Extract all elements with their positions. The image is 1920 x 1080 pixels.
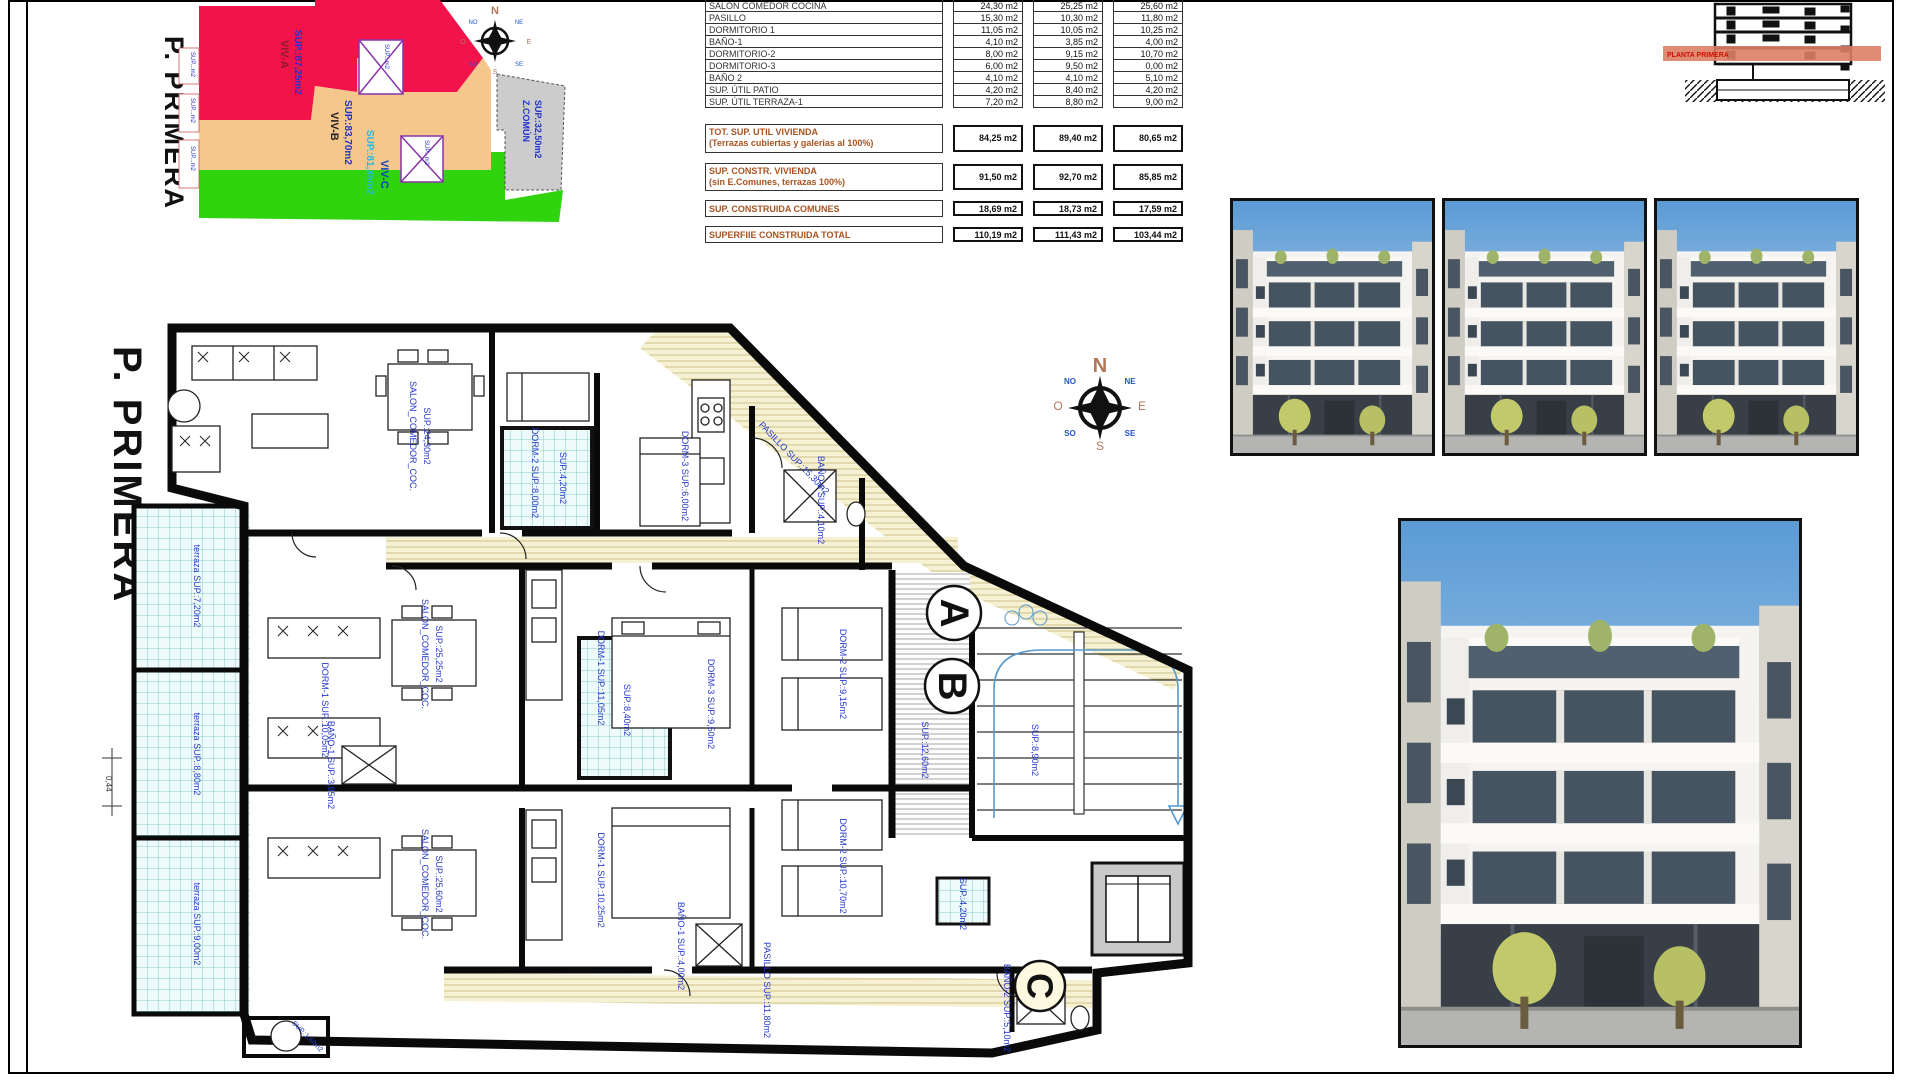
summary-viv-a: 84,25 m2	[953, 125, 1023, 152]
svg-text:NE: NE	[515, 20, 523, 26]
area-table: SALON COMEDOR COCINA 24,30 m2 25,25 m2 2…	[705, 0, 1165, 243]
room-label: SUP.:4,20m2	[558, 452, 568, 504]
summary-viv-b: 92,70 m2	[1033, 164, 1103, 191]
room-label: SALON_COMEDOR_COC.	[408, 381, 418, 491]
room-label: SUP.:8,40m2	[622, 684, 632, 736]
zone-viv-b-sup: SUP.:83,70m2	[342, 100, 353, 165]
summary-title: SUP. CONSTRUIDA COMUNES	[709, 204, 840, 214]
patio-1	[502, 428, 592, 528]
svg-text:SO: SO	[469, 62, 478, 68]
site-patio-square	[401, 136, 443, 182]
summary-note: (Terrazas cubiertas y galerias al 100%)	[709, 138, 939, 149]
room-label: DORM-3 SUP.:6,00m2	[680, 431, 690, 521]
room-label: DORM-1 SUP.:10,05m2	[320, 662, 330, 757]
summary-title: SUP. CONSTR. VIVIENDA	[709, 166, 817, 176]
photo-building-render-3	[1654, 198, 1859, 456]
site-patio-label: SUP...m2	[423, 140, 429, 166]
room-label: DORM-1 SUP.:10,25m2	[596, 832, 606, 927]
room-label: BAÑO-1 SUP.:4,00m2	[676, 902, 686, 990]
svg-text:NO: NO	[469, 20, 478, 26]
summary-row-total: SUPERFIIE CONSTRUIDA TOTAL 110,19 m2 111…	[705, 226, 1165, 243]
room-label: DORM-2 SUP.:9,15m2	[838, 629, 848, 719]
room-label: SUP.:25,60m2	[434, 855, 444, 912]
big-building-render	[1398, 518, 1802, 1048]
room-label: terraza SUP.:7,20m2	[192, 545, 202, 628]
site-edge-boxes	[179, 48, 199, 188]
room-label: terraza SUP.:9,00m2	[192, 883, 202, 966]
site-patio-square	[359, 40, 403, 94]
compass-rose-small: N E O S NO NE SO SE	[460, 5, 531, 76]
site-edge-label: SUP...m2	[189, 52, 195, 78]
sheet-border-inner-line	[26, 0, 28, 1074]
planta-band-label: PLANTA PRIMERA	[1667, 52, 1729, 59]
summary-viv-c: 103,44 m2	[1113, 227, 1183, 242]
table-row: SUP. ÚTIL TERRAZA-1 7,20 m2 8,80 m2 9,00…	[705, 95, 1165, 108]
room-label: SALON_COMEDOR_COC.	[420, 829, 430, 939]
summary-viv-c: 85,85 m2	[1113, 164, 1183, 191]
zone-comun-name: Z.COMÚN	[521, 100, 532, 142]
zone-viv-c-name: VIV-C	[378, 160, 390, 189]
summary-viv-c: 80,65 m2	[1113, 125, 1183, 152]
zone-comun-sup: SUP.:32,50m2	[533, 100, 543, 158]
room-label: BAÑO-2 SUP.:5,10m2	[1002, 964, 1012, 1052]
summary-viv-a: 110,19 m2	[953, 227, 1023, 242]
unit-letter-b: B	[930, 672, 974, 701]
room-label: BAÑO-2 SUP.:4,10m2	[816, 456, 826, 544]
summary-viv-b: 111,43 m2	[1033, 227, 1103, 242]
room-label: SUP.:8,90m2	[1030, 724, 1040, 776]
summary-row-comunes: SUP. CONSTRUIDA COMUNES 18,69 m2 18,73 m…	[705, 200, 1165, 217]
pasillo-band-mid	[386, 537, 958, 563]
summary-row-util: TOT. SUP. UTIL VIVIENDA (Terrazas cubier…	[705, 124, 1165, 153]
summary-viv-b: 89,40 m2	[1033, 125, 1103, 152]
terrace-1	[134, 508, 250, 668]
room-label: PASILLO SUP.:11,80m2	[762, 942, 772, 1038]
summary-label: SUP. CONSTR. VIVIENDA (sin E.Comunes, te…	[705, 163, 943, 192]
room-label: SUP.:12,60m2	[920, 721, 930, 778]
dimension-label: 0,44	[104, 776, 113, 792]
summary-viv-a: 18,69 m2	[953, 201, 1023, 216]
zone-viv-b-name: VIV-B	[328, 112, 340, 141]
summary-label: SUPERFIIE CONSTRUIDA TOTAL	[705, 226, 943, 243]
svg-text:N: N	[491, 5, 499, 17]
room-label: DORM-1 SUP.:11,05m2	[596, 631, 606, 726]
cell-viv-b: 8,80 m2	[1033, 95, 1103, 108]
dimension: 0,44	[102, 748, 122, 816]
summary-row-constr: SUP. CONSTR. VIVIENDA (sin E.Comunes, te…	[705, 163, 1165, 192]
room-label: DORM-3 SUP.:9,50m2	[706, 659, 716, 749]
plan-sheet: P. PRIMERA SUP...m2 SUP...m2 SUP...m2 SU…	[0, 0, 1920, 1080]
elevator	[1092, 863, 1184, 955]
svg-text:S: S	[493, 69, 498, 76]
summary-title: SUPERFIIE CONSTRUIDA TOTAL	[709, 230, 850, 240]
photo-strip	[1230, 198, 1859, 456]
stairs	[977, 605, 1187, 824]
summary-title: TOT. SUP. UTIL VIVIENDA	[709, 127, 818, 137]
zone-viv-c-sup: SUP.:81,35m2	[364, 130, 375, 195]
terrace-2	[134, 672, 250, 836]
room-label: terraza SUP.:8,80m2	[192, 713, 202, 796]
summary-label: TOT. SUP. UTIL VIVIENDA (Terrazas cubier…	[705, 124, 943, 153]
zone-viv-a-sup: SUP.:87,25m2	[292, 30, 303, 95]
section-building	[1715, 4, 1851, 80]
site-edge-label: SUP...m2	[189, 146, 195, 172]
floor-plan: P. PRIMERA	[92, 318, 1210, 1066]
summary-viv-b: 18,73 m2	[1033, 201, 1103, 216]
unit-letter-a: A	[932, 599, 976, 628]
cell-viv-a: 7,20 m2	[953, 95, 1023, 108]
terrace-3	[134, 840, 250, 1012]
summary-viv-c: 17,59 m2	[1113, 201, 1183, 216]
unit-letter-c: C	[1020, 973, 1061, 999]
row-label: SUP. ÚTIL TERRAZA-1	[705, 95, 943, 108]
photo-building-render-1	[1230, 198, 1435, 456]
room-label: SUP.:4,20m2	[958, 878, 968, 930]
summary-viv-a: 91,50 m2	[953, 164, 1023, 191]
site-patio-label: SUP...m2	[383, 44, 389, 70]
zone-viv-a-name: VIV-A	[278, 40, 290, 69]
room-label: SUP.:24,30m2	[422, 407, 432, 464]
svg-text:O: O	[460, 39, 466, 46]
room-label: SALON_COMEDOR_COC.	[420, 599, 430, 709]
svg-text:E: E	[527, 39, 532, 46]
svg-text:SE: SE	[515, 62, 523, 68]
summary-note: (sin E.Comunes, terrazas 100%)	[709, 177, 939, 188]
photo-building-render-2	[1442, 198, 1647, 456]
cell-viv-c: 9,00 m2	[1113, 95, 1183, 108]
section-drawing: PLANTA PRIMERA	[1655, 0, 1905, 108]
site-plan: P. PRIMERA SUP...m2 SUP...m2 SUP...m2 SU…	[135, 0, 585, 230]
room-label: DORM-2 SUP.:10,70m2	[838, 818, 848, 913]
summary-label: SUP. CONSTRUIDA COMUNES	[705, 200, 943, 217]
room-label: DORM-2 SUP.:8,00m2	[530, 428, 540, 518]
site-edge-label: SUP...m2	[189, 98, 195, 124]
room-label: SUP.:25,25m2	[434, 625, 444, 682]
